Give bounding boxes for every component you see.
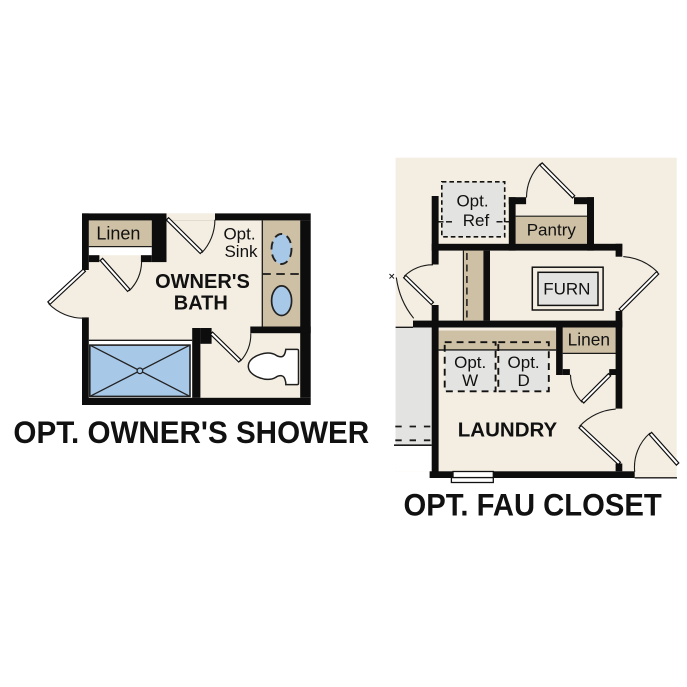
svg-text:OWNER'S: OWNER'S [155, 271, 250, 293]
svg-text:Ref: Ref [463, 211, 490, 230]
svg-text:D: D [517, 371, 529, 390]
svg-text:Pantry: Pantry [527, 220, 577, 239]
svg-text:Opt.: Opt. [454, 353, 486, 372]
svg-text:Linen: Linen [568, 330, 610, 350]
svg-text:BATH: BATH [174, 292, 228, 314]
svg-text:W: W [462, 371, 478, 390]
svg-text:Opt.: Opt. [223, 224, 255, 243]
svg-text:Sink: Sink [224, 242, 258, 261]
svg-text:OPT. OWNER'S SHOWER: OPT. OWNER'S SHOWER [13, 416, 369, 450]
svg-text:FURN: FURN [543, 280, 590, 299]
svg-text:OPT. FAU CLOSET: OPT. FAU CLOSET [404, 489, 663, 523]
svg-text:Linen: Linen [96, 223, 140, 243]
svg-text:LAUNDRY: LAUNDRY [458, 418, 558, 441]
svg-text:Opt.: Opt. [456, 192, 488, 211]
svg-text:Opt.: Opt. [508, 353, 540, 372]
